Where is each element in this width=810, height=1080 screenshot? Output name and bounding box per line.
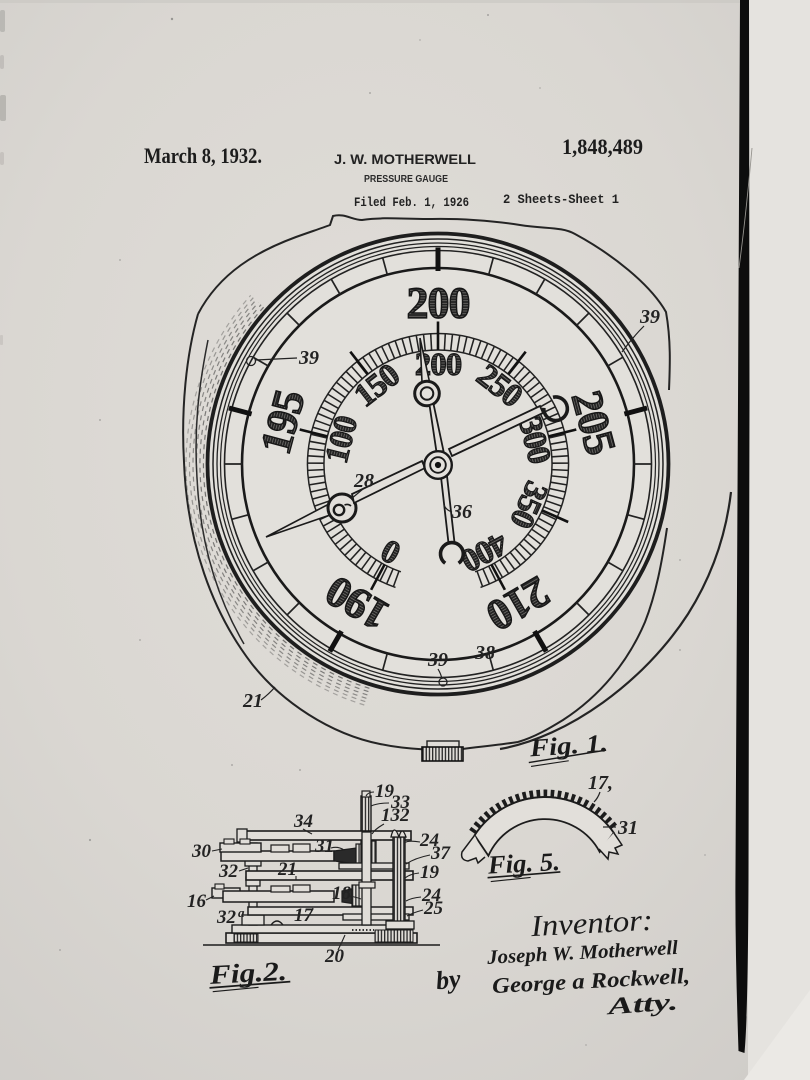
svg-text:21: 21: [242, 690, 263, 712]
svg-text:Filed Feb. 1, 1926: Filed Feb. 1, 1926: [354, 195, 469, 210]
svg-text:2 Sheets-Sheet 1: 2 Sheets-Sheet 1: [503, 192, 619, 207]
svg-text:30: 30: [191, 841, 212, 862]
svg-text:31: 31: [617, 817, 638, 839]
svg-text:16: 16: [187, 891, 207, 912]
svg-text:32: 32: [216, 907, 237, 928]
svg-text:PRESSURE GAUGE: PRESSURE GAUGE: [364, 173, 448, 185]
svg-text:J. W. MOTHERWELL: J. W. MOTHERWELL: [334, 151, 476, 167]
svg-text:32: 32: [218, 861, 239, 882]
svg-text:34: 34: [293, 811, 313, 832]
svg-text:20: 20: [324, 946, 345, 967]
svg-text:17: 17: [294, 905, 315, 926]
svg-text:31: 31: [314, 836, 334, 857]
svg-text:38: 38: [474, 642, 495, 664]
svg-text:Inventor:: Inventor:: [529, 904, 654, 943]
svg-text:21: 21: [277, 859, 297, 880]
svg-text:17,: 17,: [588, 772, 613, 794]
svg-text:39: 39: [427, 649, 448, 671]
svg-text:1,848,489: 1,848,489: [562, 134, 643, 159]
svg-text:132: 132: [381, 805, 410, 826]
svg-text:39: 39: [639, 306, 660, 328]
svg-text:a: a: [238, 905, 245, 920]
svg-text:37: 37: [430, 843, 452, 864]
svg-text:19: 19: [420, 862, 440, 883]
svg-text:Atty.: Atty.: [604, 989, 679, 1020]
svg-text:36: 36: [451, 501, 472, 523]
svg-text:18: 18: [332, 883, 352, 904]
svg-text:by: by: [435, 964, 463, 995]
svg-text:200: 200: [407, 279, 470, 328]
svg-text:25: 25: [423, 898, 444, 919]
svg-text:March 8, 1932.: March 8, 1932.: [144, 143, 262, 168]
svg-text:39: 39: [298, 347, 319, 369]
svg-text:28: 28: [353, 470, 374, 492]
svg-text:Fig. 1.: Fig. 1.: [528, 730, 609, 762]
